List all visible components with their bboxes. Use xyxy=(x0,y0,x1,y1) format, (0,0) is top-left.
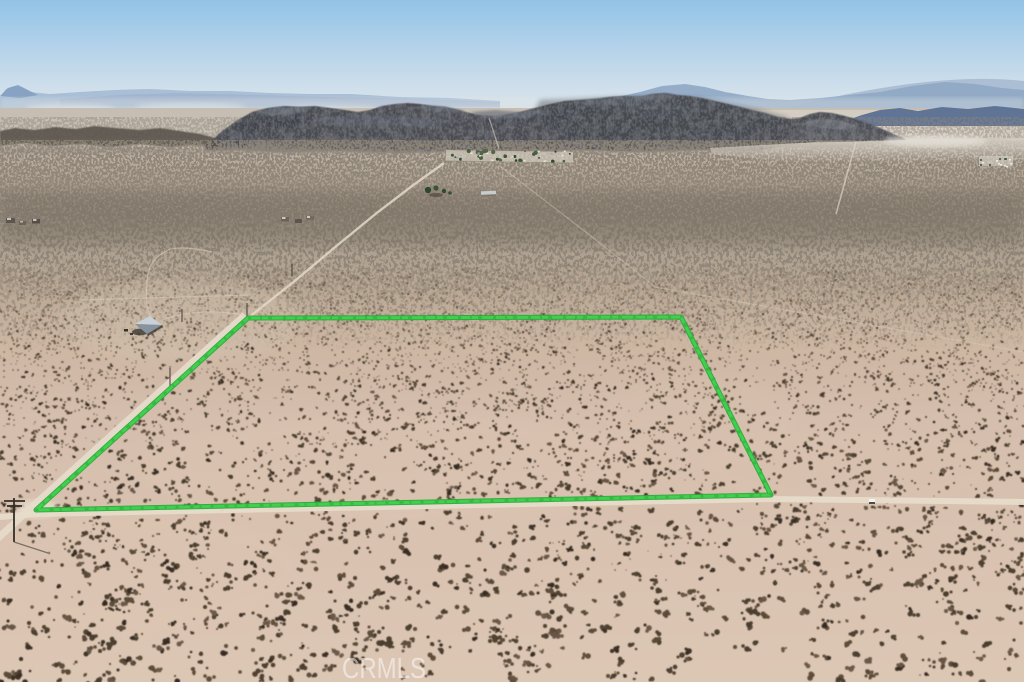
svg-text:CRMLS: CRMLS xyxy=(342,653,426,682)
